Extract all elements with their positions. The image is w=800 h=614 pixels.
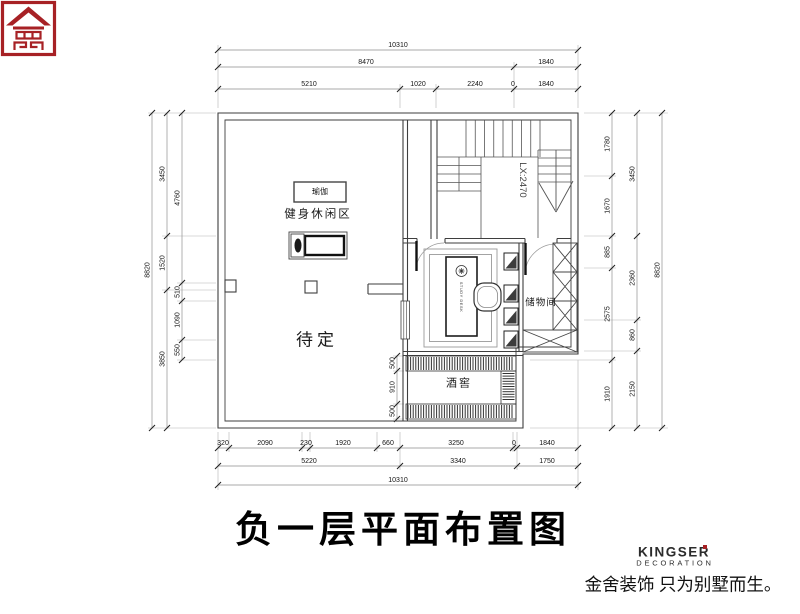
registered-mark-icon [703, 545, 707, 549]
dim-bot-320: 320 [217, 440, 229, 447]
label-yoga: 瑜伽 [312, 188, 328, 196]
column [305, 281, 317, 293]
dim-right-1910: 1910 [605, 386, 612, 402]
dim-bot-3250: 3250 [448, 440, 464, 447]
wall-pilaster [225, 280, 236, 292]
dim-right-1670: 1670 [605, 198, 612, 214]
label-fitness-zone: 健身休闲区 [284, 209, 352, 221]
dim-right-3450: 3450 [630, 166, 637, 182]
chair [474, 283, 501, 311]
dim-bot-2090: 2090 [257, 440, 273, 447]
walls [218, 113, 578, 428]
dim-right-1780: 1780 [605, 136, 612, 152]
dim-left-total: 8820 [145, 262, 152, 278]
dim-left-3850: 3850 [160, 351, 167, 367]
dim-cellar-910: 910 [390, 381, 397, 393]
floor-plan-sheet: 10310 8470 1840 5210 1020 2240 0 1840 32… [0, 0, 800, 614]
dim-right-885: 885 [605, 246, 612, 258]
dim-top-1020: 1020 [410, 81, 426, 88]
dim-bot-3340: 3340 [450, 458, 466, 465]
dim-top-1840a: 1840 [538, 59, 554, 66]
label-pending: 待定 [296, 332, 338, 349]
treadmill [289, 232, 347, 259]
dim-left-4760: 4760 [175, 190, 182, 206]
label-wine-cellar: 酒窖 [446, 379, 472, 390]
dim-bot-1840: 1840 [539, 440, 555, 447]
dim-top-2240: 2240 [467, 81, 483, 88]
dim-right-860: 860 [630, 329, 637, 341]
brand-division: DECORATION [636, 559, 713, 568]
label-storage: 储物间 [525, 298, 557, 308]
dim-cellar-500a: 500 [390, 357, 397, 369]
dim-bot-zero: 0 [512, 440, 516, 447]
dim-left-3450: 3450 [160, 166, 167, 182]
dim-right-2360: 2360 [630, 270, 637, 286]
dim-top-8470: 8470 [358, 59, 374, 66]
doors [416, 241, 556, 275]
dim-bot-230: 230 [300, 440, 312, 447]
dim-right-total: 8820 [655, 262, 662, 278]
dim-bot-660: 660 [382, 440, 394, 447]
label-stair-note: LX:2470 [517, 162, 527, 197]
dim-top-total: 10310 [388, 42, 407, 49]
page-title: 负一层平面布置图 [235, 499, 571, 553]
dim-cellar-500b: 500 [390, 405, 397, 417]
dim-bot-1750: 1750 [539, 458, 555, 465]
dim-left-1520: 1520 [160, 255, 167, 271]
dim-top-1840b: 1840 [538, 81, 554, 88]
brand-name: KINGSER [638, 545, 710, 560]
dim-left-510: 510 [175, 286, 182, 298]
dim-top-5210: 5210 [301, 81, 317, 88]
dim-left-1090: 1090 [175, 312, 182, 328]
dim-left-550: 550 [175, 344, 182, 356]
staircase [437, 120, 573, 238]
dim-right-2575: 2575 [605, 306, 612, 322]
brand-tagline: 金舍装饰 只为别墅而生。 [585, 572, 782, 597]
speaker-cabinets [504, 253, 518, 348]
dim-bot-5220: 5220 [301, 458, 317, 465]
dim-bot-1920: 1920 [335, 440, 351, 447]
dim-right-2150: 2150 [630, 381, 637, 397]
dim-bot-total: 10310 [388, 477, 407, 484]
kingser-logo-icon [0, 0, 57, 57]
label-desk: STUDY DESK [459, 282, 463, 313]
dim-top-zero: 0 [511, 81, 515, 88]
